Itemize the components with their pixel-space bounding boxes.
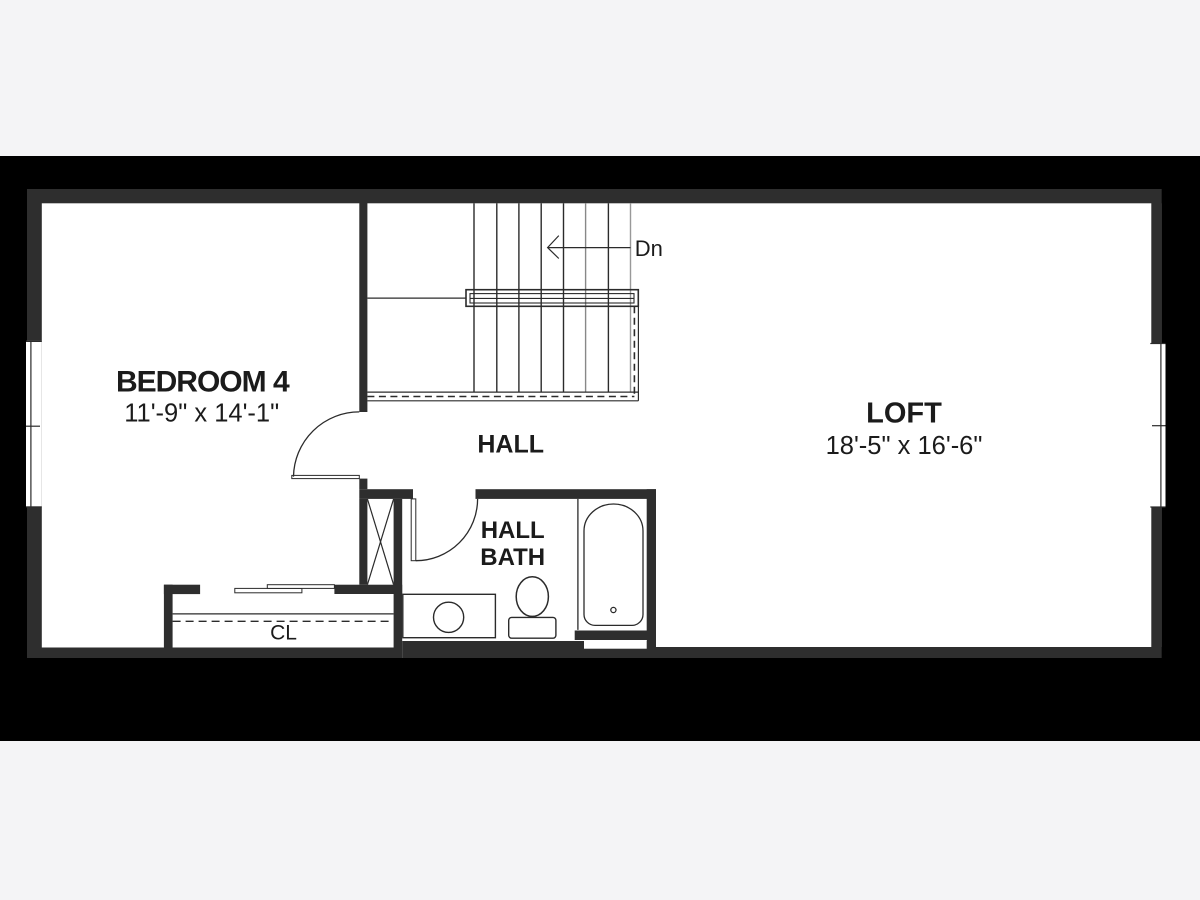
- svg-text:HALL: HALL: [477, 431, 544, 459]
- svg-text:BEDROOM 4: BEDROOM 4: [116, 365, 290, 398]
- svg-text:11'-9" x 14'-1": 11'-9" x 14'-1": [124, 399, 279, 427]
- svg-text:18'-5" x 16'-6": 18'-5" x 16'-6": [826, 432, 983, 460]
- svg-text:HALL: HALL: [481, 517, 545, 544]
- svg-text:Dn: Dn: [635, 236, 663, 261]
- svg-text:LOFT: LOFT: [866, 397, 942, 429]
- svg-text:CL: CL: [270, 622, 297, 645]
- svg-text:BATH: BATH: [480, 544, 545, 571]
